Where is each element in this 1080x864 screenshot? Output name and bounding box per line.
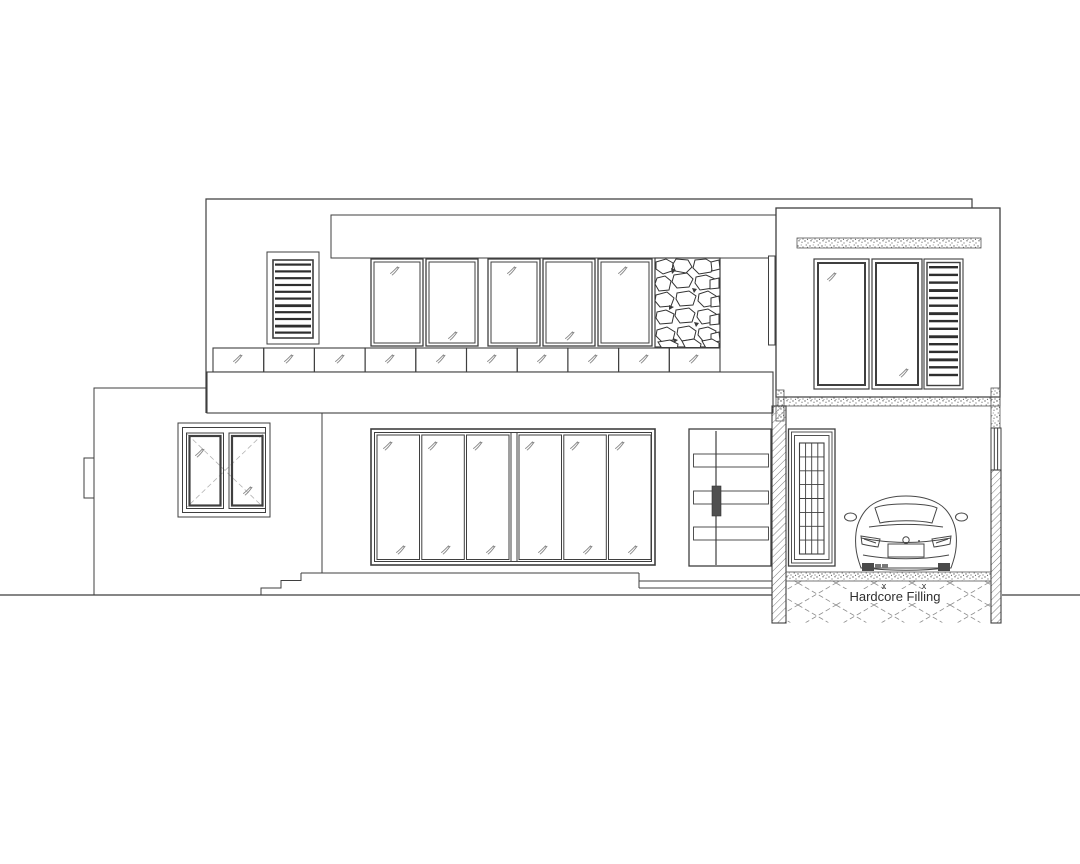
center-mullion (511, 433, 517, 562)
glass-mark-icon (244, 487, 253, 495)
glass-mark-icon (508, 267, 517, 275)
concrete-band (797, 238, 981, 248)
window-band-inner-frame (375, 433, 652, 562)
elevation-drawing: x x Hardcore Filling (0, 0, 1080, 864)
downpipe (769, 256, 777, 390)
louver-slats (275, 264, 311, 334)
entrance-door (689, 429, 771, 566)
section-cut-wall-left (772, 406, 786, 623)
casement-right (229, 433, 266, 509)
entry-steps-right (639, 573, 772, 588)
glass-mark-icon (449, 332, 458, 340)
door-panel (694, 454, 769, 467)
glass-mark-icon (196, 449, 205, 457)
glass-mark-icon (619, 267, 628, 275)
entry-steps-left (261, 573, 301, 595)
casement-direction-marks (187, 434, 263, 507)
balcony-railing (213, 348, 720, 372)
left-wing-pilaster (84, 458, 94, 498)
upper-window (598, 259, 652, 346)
car-mirror-left (845, 513, 857, 521)
window-band-outer-frame (371, 429, 655, 565)
hardcore-filling-label: Hardcore Filling (849, 589, 940, 604)
upper-window (543, 259, 595, 346)
window-pane (519, 435, 562, 560)
window-pane (467, 435, 510, 560)
car-taillight-right (932, 536, 951, 547)
window-pane (609, 435, 652, 560)
window-pane (564, 435, 607, 560)
door-panel (694, 491, 769, 504)
right-block-outline (776, 208, 1000, 397)
casement-left (187, 433, 224, 509)
section-cut-wall-right (991, 428, 1001, 623)
ground-floor (261, 413, 772, 595)
car-wheel-left (862, 563, 874, 571)
elevation-sheet: x x Hardcore Filling (0, 0, 1080, 864)
door-frame (689, 429, 771, 566)
door-panel (694, 527, 769, 540)
car-body-lines (861, 524, 951, 570)
garage-glazed-door (789, 429, 836, 566)
stone-cladding-panel (655, 258, 720, 350)
ground-window-band (371, 429, 655, 565)
upper-window (488, 259, 540, 346)
glass-mark-icon (566, 332, 575, 340)
left-wing-window (178, 423, 270, 517)
car-exhaust (882, 564, 888, 568)
car-exhaust (875, 564, 881, 568)
car-rear-view (845, 496, 968, 571)
rail-glass-marks (234, 355, 699, 363)
casement-left-sash (190, 436, 221, 506)
window-pane (422, 435, 465, 560)
car-taillight-left (861, 536, 880, 547)
garage-section: x x Hardcore Filling (772, 406, 1001, 623)
casement-right-sash (232, 436, 263, 506)
glass-mark-icon (391, 267, 400, 275)
left-wing (84, 388, 270, 595)
car-license-plate (888, 544, 924, 557)
louver-slats (929, 266, 958, 376)
front-parapet-band (331, 215, 776, 258)
door-handle (712, 486, 721, 516)
balcony-fascia (207, 372, 773, 413)
hardcore-filling-zone: x x Hardcore Filling (786, 581, 991, 623)
right-block (776, 208, 1000, 428)
upper-window (371, 259, 423, 346)
slab-post-right (991, 388, 1000, 428)
window-pane (377, 435, 420, 560)
car-mirror-right (956, 513, 968, 521)
upper-window (426, 259, 478, 346)
car-rear-window (875, 504, 937, 523)
garage-floor-slab (786, 572, 991, 581)
upper-window-row (371, 259, 652, 346)
floor-slab-band (778, 397, 1000, 406)
car-wheel-right (938, 563, 950, 571)
louver-panel-left (267, 252, 319, 344)
